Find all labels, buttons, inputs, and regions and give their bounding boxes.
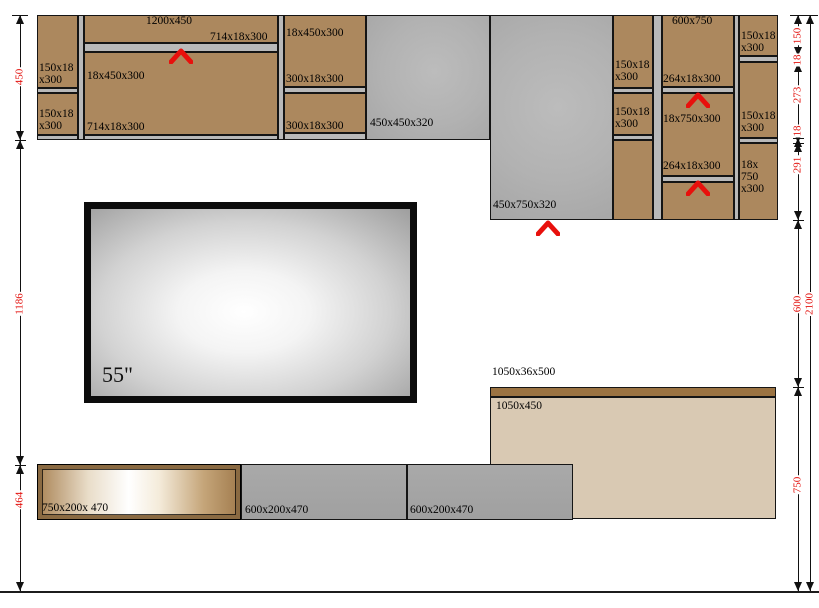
dim-line-right-inner-value: 18	[792, 125, 805, 138]
tv[interactable]: 55"	[84, 202, 417, 403]
cabinet-4-top-section[interactable]	[613, 15, 653, 88]
cabinet-main-body[interactable]	[84, 52, 278, 135]
dim-line-left-value: 450	[14, 68, 27, 87]
dim-line-left-arrow	[16, 15, 24, 24]
gray-panel-450x750[interactable]	[490, 15, 613, 220]
cabinet-left-mid-section[interactable]	[37, 93, 78, 135]
dim-line-right-inner-value: 750	[792, 476, 805, 495]
cabinet-main-top-section[interactable]	[84, 15, 278, 43]
tv-size-label: 55"	[102, 362, 133, 388]
dim-line-right-outer-value: 2100	[804, 292, 817, 316]
dim-line-right-inner-arrow	[794, 582, 802, 591]
dim-line-left-arrow	[16, 465, 24, 474]
dim-line-right-inner-value: 291	[792, 156, 805, 175]
highlight-caret-icon	[536, 220, 560, 236]
dim-line-left-value: 1186	[14, 292, 27, 316]
cabinet-right-bottom-section[interactable]	[739, 143, 778, 220]
dim-line-right-outer-arrow	[806, 582, 814, 591]
dim-line-right-inner-arrow	[794, 378, 802, 387]
cabinet-3-top-section[interactable]	[284, 15, 366, 87]
dim-line-right-inner-value: 150	[792, 27, 805, 46]
cabinet-left-top-section[interactable]	[37, 15, 78, 88]
cabinet-3-bottom-panel[interactable]	[284, 133, 366, 140]
dim-line-left-value: 464	[14, 491, 27, 510]
drawer-600x200x470-b[interactable]	[407, 464, 573, 520]
cabinet-4-mid-section[interactable]	[613, 93, 653, 135]
dim-line-right-outer-arrow	[806, 15, 814, 24]
drawer-600x200x470-a[interactable]	[241, 464, 407, 520]
cabinet-right-mid-section[interactable]	[739, 62, 778, 138]
highlight-caret-icon	[686, 92, 710, 108]
drawer-750x200x470[interactable]	[37, 464, 241, 520]
dim-line-right-inner-value: 18	[792, 54, 805, 67]
gray-panel-450x450[interactable]	[366, 15, 490, 140]
dim-line-right-inner-arrow	[794, 220, 802, 229]
panel-label: 1050x36x500	[492, 366, 555, 378]
cabinet-right-top-section[interactable]	[739, 15, 778, 56]
counter-top-strip-1050x36x500[interactable]	[490, 387, 776, 397]
dim-line-right-inner-arrow	[794, 143, 802, 152]
dim-line-right-inner-arrow	[794, 211, 802, 220]
floor-line	[0, 591, 819, 593]
cabinet-3-mid-section[interactable]	[284, 93, 366, 133]
tv-screen: 55"	[91, 209, 410, 396]
dim-line-left-arrow	[16, 456, 24, 465]
vertical-divider-3[interactable]	[653, 15, 662, 220]
cabinet-left-bottom-panel[interactable]	[37, 135, 78, 140]
highlight-caret-icon	[169, 48, 193, 64]
cabinet-main-bottom-panel[interactable]	[84, 135, 278, 140]
dim-line-right-inner-arrow	[794, 15, 802, 24]
cabinet-600x750-top-section[interactable]	[662, 15, 734, 87]
highlight-caret-icon	[686, 180, 710, 196]
cabinet-4-bottom-section[interactable]	[613, 140, 653, 220]
dim-line-left-arrow	[16, 140, 24, 149]
dim-line-left-arrow	[16, 582, 24, 591]
dim-line-right-inner-arrow	[794, 387, 802, 396]
dim-line-right-inner-value: 273	[792, 86, 805, 105]
dim-line-left-arrow	[16, 131, 24, 140]
design-canvas: 55" 1200x450714x18x300150x18 x300150x18 …	[0, 0, 819, 608]
